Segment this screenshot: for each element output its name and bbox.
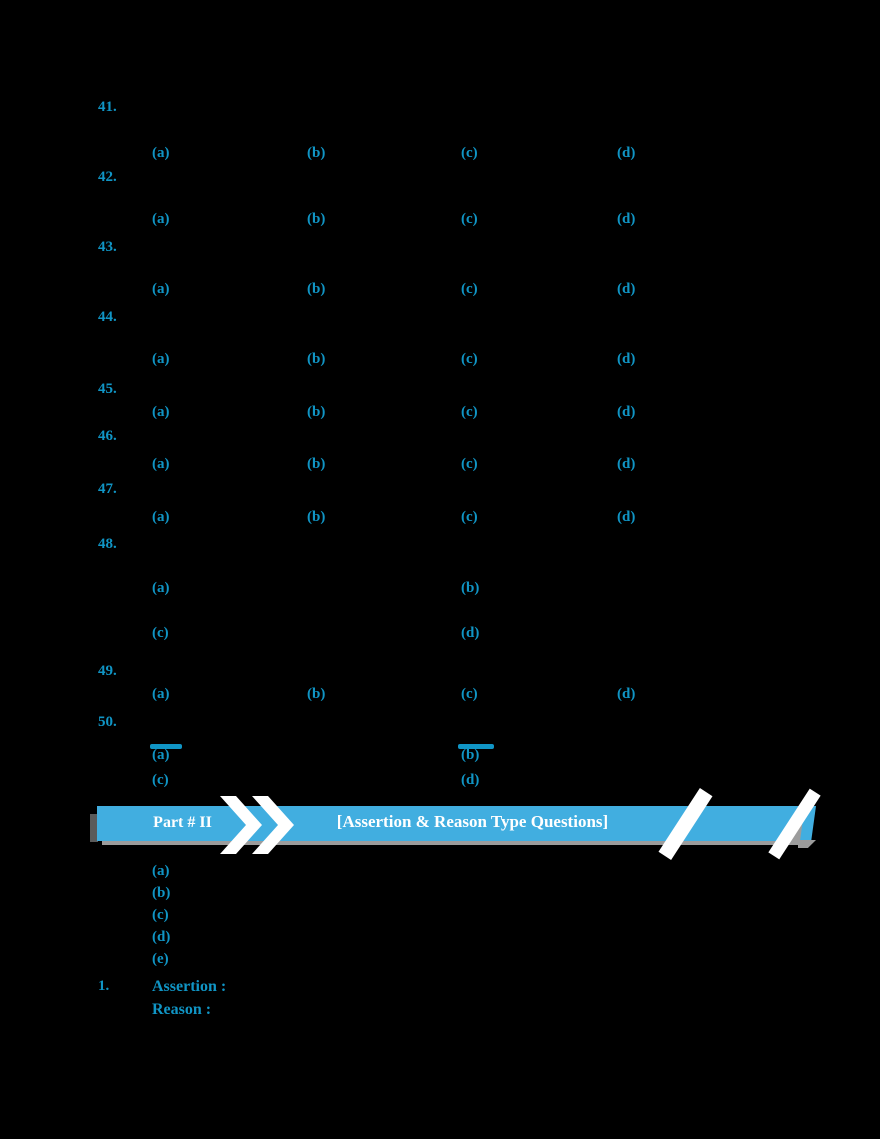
- option-marker: (a): [152, 282, 170, 297]
- option-marker: (d): [617, 405, 635, 420]
- question-number: 42.: [98, 170, 117, 185]
- option-marker: (c): [461, 457, 478, 472]
- option-marker: (d): [617, 687, 635, 702]
- double-chevron-right-icon: [218, 794, 296, 856]
- option-marker: (a): [152, 510, 170, 525]
- small-cyan-detail: [150, 744, 182, 749]
- assertion-label: Assertion :: [152, 979, 226, 995]
- answer-choice-marker: (b): [152, 886, 170, 901]
- question-number: 47.: [98, 482, 117, 497]
- option-marker: (b): [307, 510, 325, 525]
- answer-choice-marker: (a): [152, 864, 170, 879]
- question-number: 49.: [98, 664, 117, 679]
- option-marker: (d): [617, 510, 635, 525]
- question-number: 43.: [98, 240, 117, 255]
- question-number: 48.: [98, 537, 117, 552]
- option-marker: (c): [152, 773, 169, 788]
- option-marker: (d): [461, 773, 479, 788]
- option-marker: (b): [307, 352, 325, 367]
- question-number: 1.: [98, 979, 109, 994]
- banner-title: [Assertion & Reason Type Questions]: [330, 812, 615, 832]
- option-marker: (a): [152, 748, 170, 763]
- option-marker: (c): [461, 687, 478, 702]
- answer-choice-marker: (d): [152, 930, 170, 945]
- banner-left-notch: [90, 814, 98, 842]
- question-number: 50.: [98, 715, 117, 730]
- option-marker: (a): [152, 581, 170, 596]
- option-marker: (d): [617, 212, 635, 227]
- option-marker: (b): [307, 212, 325, 227]
- option-marker: (a): [152, 687, 170, 702]
- answer-choice-marker: (e): [152, 952, 169, 967]
- option-marker: (d): [617, 146, 635, 161]
- option-marker: (c): [461, 146, 478, 161]
- option-marker: (c): [461, 352, 478, 367]
- option-marker: (c): [461, 405, 478, 420]
- option-marker: (d): [617, 282, 635, 297]
- option-marker: (a): [152, 352, 170, 367]
- option-marker: (d): [461, 626, 479, 641]
- option-marker: (b): [307, 146, 325, 161]
- option-marker: (b): [307, 457, 325, 472]
- option-marker: (c): [152, 626, 169, 641]
- document-page: 41.(a)(b)(c)(d)42.(a)(b)(c)(d)43.(a)(b)(…: [0, 0, 880, 1139]
- question-number: 46.: [98, 429, 117, 444]
- question-number: 44.: [98, 310, 117, 325]
- option-marker: (b): [307, 405, 325, 420]
- option-marker: (b): [307, 282, 325, 297]
- option-marker: (a): [152, 146, 170, 161]
- answer-choice-marker: (c): [152, 908, 169, 923]
- question-number: 41.: [98, 100, 117, 115]
- option-marker: (c): [461, 212, 478, 227]
- option-marker: (b): [461, 748, 479, 763]
- option-marker: (c): [461, 510, 478, 525]
- small-cyan-detail: [458, 744, 494, 749]
- option-marker: (d): [617, 457, 635, 472]
- option-marker: (d): [617, 352, 635, 367]
- option-marker: (c): [461, 282, 478, 297]
- banner-right-tail: [798, 840, 816, 848]
- option-marker: (a): [152, 405, 170, 420]
- reason-label: Reason :: [152, 1002, 211, 1018]
- question-number: 45.: [98, 382, 117, 397]
- option-marker: (b): [461, 581, 479, 596]
- option-marker: (b): [307, 687, 325, 702]
- part-label: Part # II: [140, 813, 225, 832]
- option-marker: (a): [152, 212, 170, 227]
- option-marker: (a): [152, 457, 170, 472]
